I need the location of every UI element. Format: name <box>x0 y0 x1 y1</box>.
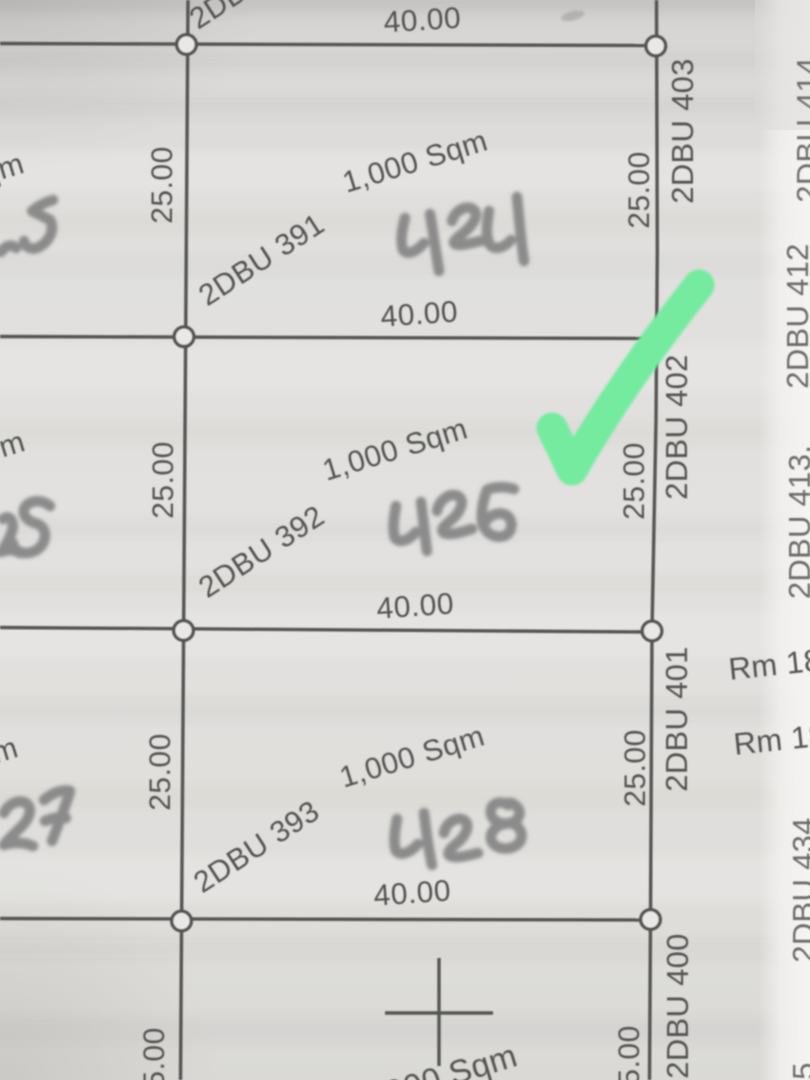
svg-text:2DBU 434: 2DBU 434 <box>786 817 810 962</box>
svg-text:25.00: 25.00 <box>618 442 651 520</box>
svg-text:40.00: 40.00 <box>379 295 459 333</box>
svg-text:2DBU 403: 2DBU 403 <box>665 58 700 203</box>
svg-text:25.00: 25.00 <box>623 151 656 229</box>
svg-text:2DBU 400: 2DBU 400 <box>660 933 695 1078</box>
svg-text:2DBU 401: 2DBU 401 <box>659 646 694 791</box>
svg-text:25.00: 25.00 <box>138 1027 171 1080</box>
svg-text:2DBU 402: 2DBU 402 <box>659 354 694 499</box>
svg-text:25.00: 25.00 <box>619 729 652 807</box>
svg-text:5: 5 <box>786 1062 810 1080</box>
svg-text:40.00: 40.00 <box>372 874 452 912</box>
svg-text:25.00: 25.00 <box>147 441 180 519</box>
svg-text:2DBU 414: 2DBU 414 <box>790 57 810 202</box>
svg-text:25.00: 25.00 <box>144 733 177 811</box>
svg-text:2DBU 413,: 2DBU 413, <box>782 445 810 599</box>
svg-text:40.00: 40.00 <box>375 587 455 625</box>
svg-text:25.00: 25.00 <box>146 146 179 224</box>
svg-text:2DBU 412: 2DBU 412 <box>780 243 810 388</box>
svg-text:40.00: 40.00 <box>383 2 462 40</box>
svg-text:25.00: 25.00 <box>613 1025 646 1080</box>
